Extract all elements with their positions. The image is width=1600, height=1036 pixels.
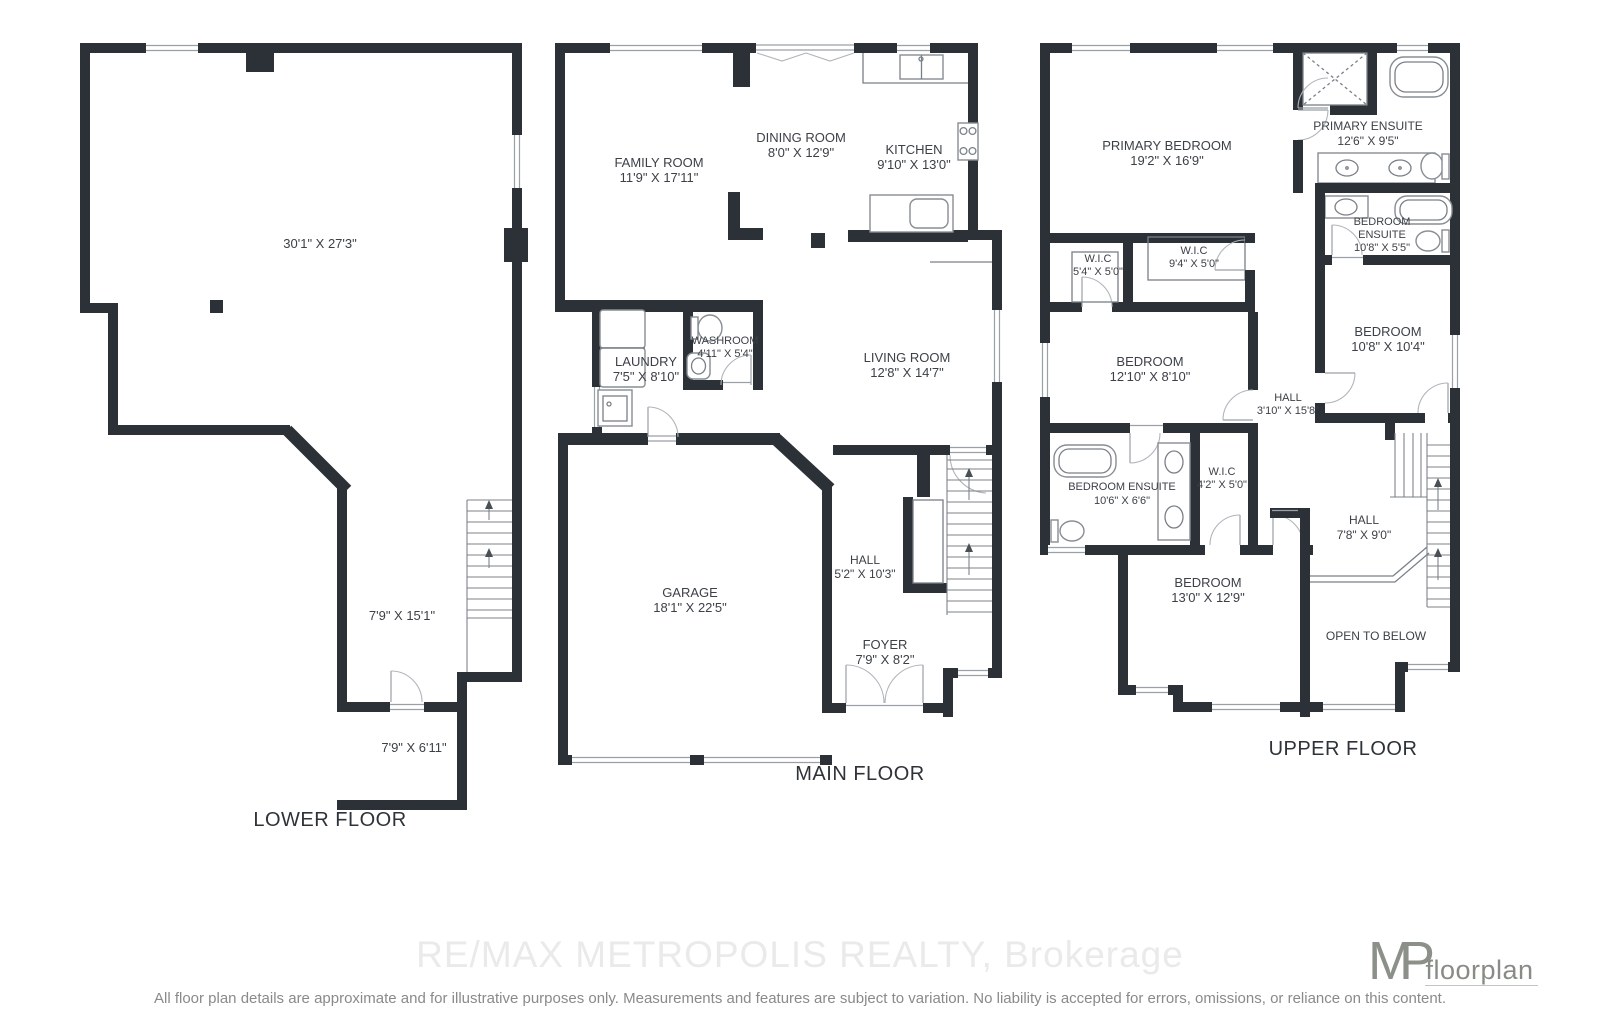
room-dims: 8'0" X 12'9" xyxy=(768,145,835,160)
stair-arrow-icon xyxy=(485,548,493,557)
room-label: HALL xyxy=(850,553,880,567)
room-dims: 5'2" X 10'3" xyxy=(834,567,895,581)
garage-door-post xyxy=(690,755,704,765)
room-dims: 7'9" X 6'11" xyxy=(381,740,447,755)
main-floor-plan: FAMILY ROOM 11'9" X 17'11" DINING ROOM 8… xyxy=(555,43,1002,785)
room-label: PRIMARY ENSUITE xyxy=(1313,119,1423,133)
wall-stub xyxy=(246,50,274,72)
room-label: GARAGE xyxy=(662,585,718,600)
stair-arrow-icon xyxy=(1434,478,1442,487)
logo-text: floorplan xyxy=(1425,955,1537,986)
bathtub xyxy=(1390,57,1448,97)
lower-floor-plan: 30'1" X 27'3" 7'9" X 15'1" 7'9" X 6'11" … xyxy=(80,43,528,831)
room-dims: 10'8" X 5'5" xyxy=(1354,242,1410,254)
floor-title-main: MAIN FLOOR xyxy=(795,763,924,785)
room-dims: 11'9" X 17'11" xyxy=(620,170,699,185)
room-dims: 12'6" X 9'5" xyxy=(1337,134,1398,148)
room-dims: 18'1" X 22'5" xyxy=(653,600,727,615)
room-dims: 7'9" X 15'1" xyxy=(369,608,436,623)
room-dims: 10'6" X 6'6" xyxy=(1094,495,1150,507)
logo-initials: MP xyxy=(1368,931,1421,991)
bay-window xyxy=(757,53,806,61)
floor-title-upper: UPPER FLOOR xyxy=(1269,738,1418,760)
room-label: OPEN TO BELOW xyxy=(1326,629,1427,643)
room-dims: 4'2" X 5'0" xyxy=(1197,479,1247,491)
front-door-arc xyxy=(885,665,923,703)
room-dims: 19'2" X 16'9" xyxy=(1130,153,1204,168)
room-dims: 5'4" X 5'0" xyxy=(1073,266,1123,278)
post xyxy=(210,300,223,313)
room-label: HALL xyxy=(1349,513,1379,527)
room-label: LAUNDRY xyxy=(615,354,677,369)
closet xyxy=(913,500,943,583)
room-label: KITCHEN xyxy=(885,142,942,157)
room-label: FAMILY ROOM xyxy=(614,155,703,170)
room-label: WASHROOM xyxy=(692,335,759,347)
bathtub xyxy=(1054,445,1116,477)
room-label: W.I.C xyxy=(1085,253,1112,265)
stair-arrow-icon xyxy=(965,543,973,552)
room-label: BEDROOM xyxy=(1354,324,1421,339)
room-label: LIVING ROOM xyxy=(864,350,951,365)
room-label: W.I.C xyxy=(1209,466,1236,478)
door-arc xyxy=(391,671,422,702)
bay-window xyxy=(806,53,854,61)
room-label: BEDROOM ENSUITE xyxy=(1068,481,1176,493)
toilet xyxy=(1416,231,1440,251)
stairs-lower xyxy=(467,500,512,672)
room-dims: 9'10" X 13'0" xyxy=(877,157,951,172)
room-label: BEDROOM xyxy=(1116,354,1183,369)
room-dims: 12'8" X 14'7" xyxy=(870,365,944,380)
brokerage-watermark: RE/MAX METROPOLIS REALTY, Brokerage xyxy=(0,934,1600,976)
room-label: BEDROOM xyxy=(1174,575,1241,590)
upper-floor-plan: PRIMARY BEDROOM 19'2" X 16'9" PRIMARY EN… xyxy=(1040,43,1460,760)
island-cooktop xyxy=(910,199,948,228)
floorplan-canvas: 30'1" X 27'3" 7'9" X 15'1" 7'9" X 6'11" … xyxy=(0,0,1600,1036)
room-dims: 9'4" X 5'0" xyxy=(1169,258,1219,270)
room-dims: 4'11" X 5'4" xyxy=(697,348,752,360)
stairs-upper xyxy=(1390,433,1450,607)
room-dims: 7'5" X 8'10" xyxy=(613,369,680,384)
room-label: W.I.C xyxy=(1181,245,1208,257)
stair-arrow-icon xyxy=(485,500,493,509)
stair-arrow-icon xyxy=(1434,548,1442,557)
room-label: BEDROOM xyxy=(1354,216,1411,228)
stairs-main xyxy=(947,455,992,615)
chimney xyxy=(504,228,528,262)
disclaimer-text: All floor plan details are approximate a… xyxy=(0,990,1600,1007)
room-dims: 7'8" X 9'0" xyxy=(1337,528,1391,542)
room-label: DINING ROOM xyxy=(756,130,846,145)
post xyxy=(811,233,825,248)
front-door-arc xyxy=(846,665,884,703)
room-label: HALL xyxy=(1274,392,1302,404)
toilet xyxy=(1060,521,1084,541)
floor-title-lower: LOWER FLOOR xyxy=(253,809,406,831)
toilet xyxy=(1421,153,1443,179)
room-dims: 7'9" X 8'2" xyxy=(855,652,914,667)
washer xyxy=(600,310,645,348)
room-dims: 10'8" X 10'4" xyxy=(1351,339,1425,354)
room-label: ENSUITE xyxy=(1358,229,1406,241)
mp-floorplan-logo: MP floorplan xyxy=(1368,930,1538,992)
room-label: FOYER xyxy=(863,637,908,652)
room-dims: 30'1" X 27'3" xyxy=(283,236,357,251)
room-label: PRIMARY BEDROOM xyxy=(1102,138,1232,153)
room-dims: 3'10" X 15'8" xyxy=(1257,405,1319,417)
room-dims: 13'0" X 12'9" xyxy=(1171,590,1245,605)
room-dims: 12'10" X 8'10" xyxy=(1110,369,1191,384)
